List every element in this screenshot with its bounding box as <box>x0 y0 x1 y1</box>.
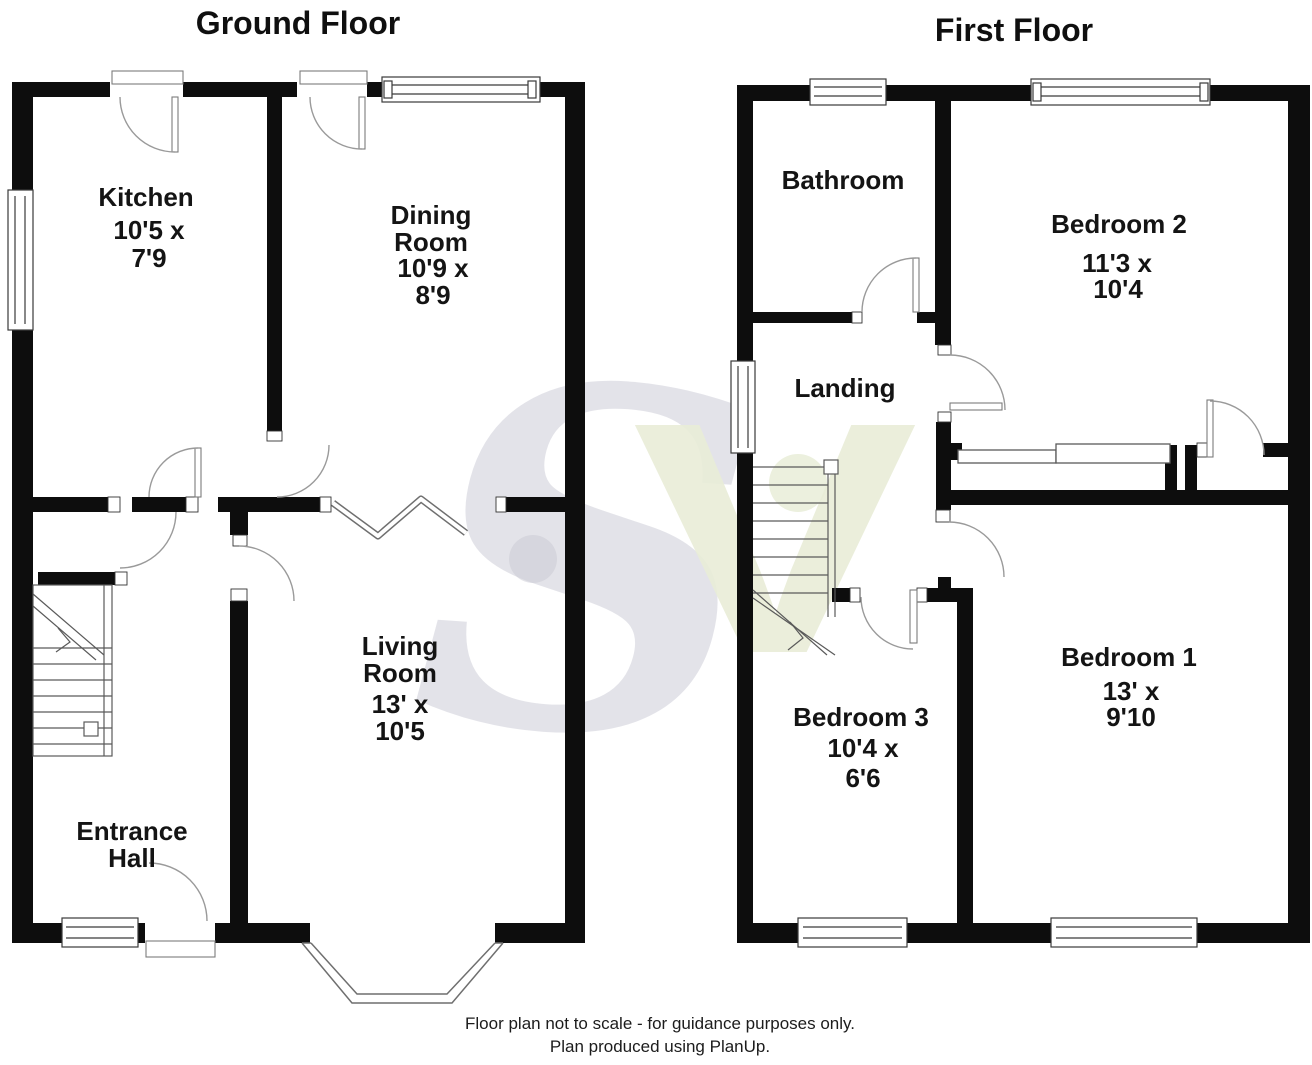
window-bedroom3-bottom <box>798 918 907 947</box>
footer-credit: Plan produced using PlanUp. <box>550 1037 770 1056</box>
cupboard-door-leaf <box>1207 400 1213 457</box>
footer-disclaimer: Floor plan not to scale - for guidance p… <box>465 1014 855 1033</box>
room-dim-living-1: 13' x <box>372 689 429 719</box>
dining-exterior-door-frame <box>300 71 367 84</box>
room-dim-bedroom3-1: 10'4 x <box>827 733 899 763</box>
window-bedroom1-bottom <box>1051 918 1197 947</box>
front-door-arc <box>149 863 207 921</box>
cupboard-door-arc <box>1210 401 1264 455</box>
dining-exterior-door-arc <box>310 97 362 149</box>
bedroom1-wardrobes <box>958 444 1170 463</box>
ground-floor-title: Ground Floor <box>196 5 400 41</box>
bedroom2-door-arc <box>950 355 1005 410</box>
room-dim-kitchen-2: 7'9 <box>131 243 166 273</box>
dining-exterior-door-leaf <box>359 97 365 149</box>
kitchen-exterior-door-arc <box>120 97 175 152</box>
hall-door-arc <box>120 512 176 568</box>
room-label-landing: Landing <box>794 373 895 403</box>
room-label-bathroom: Bathroom <box>782 165 905 195</box>
room-dim-bedroom1-2: 9'10 <box>1106 702 1156 732</box>
bathroom-door-arc <box>862 258 916 312</box>
room-dim-kitchen-1: 10'5 x <box>113 215 185 245</box>
front-door-frame <box>146 941 215 957</box>
room-label-hall-2: Hall <box>108 843 156 873</box>
room-dim-dining-1: 10'9 x <box>397 253 469 283</box>
window-landing-left <box>731 361 755 453</box>
first-floor-title: First Floor <box>935 12 1093 48</box>
kitchen-exterior-door-leaf <box>172 97 178 152</box>
floor-plan-page: S V <box>0 0 1312 1065</box>
window-hall-bottom <box>62 918 138 947</box>
room-label-kitchen: Kitchen <box>98 182 193 212</box>
room-label-hall-1: Entrance <box>76 816 187 846</box>
kitchen-exterior-door-frame <box>112 71 183 84</box>
dining-door-arc <box>277 445 329 497</box>
kitchen-hall-door-arc <box>149 448 198 497</box>
window-ground-top <box>382 77 540 102</box>
bedroom3-door-leaf <box>910 590 917 643</box>
room-dim-dining-2: 8'9 <box>415 280 450 310</box>
room-label-bedroom2: Bedroom 2 <box>1051 209 1187 239</box>
room-dim-bedroom2-2: 10'4 <box>1093 274 1143 304</box>
bathroom-door-leaf <box>913 258 919 312</box>
room-label-bedroom1: Bedroom 1 <box>1061 642 1197 672</box>
kitchen-hall-door-leaf <box>195 448 201 497</box>
bay-window <box>302 943 503 1003</box>
window-bedroom2-top <box>1031 79 1210 105</box>
ground-floor-plan: Ground Floor Kitchen 10'5 x 7'9 Dining R… <box>8 5 585 1003</box>
window-bathroom-top <box>810 79 886 105</box>
room-label-living-1: Living <box>362 631 439 661</box>
watermark: S V <box>401 276 920 850</box>
room-dim-bedroom3-2: 6'6 <box>845 763 880 793</box>
bedroom2-door-leaf <box>950 403 1002 410</box>
room-label-bedroom3: Bedroom 3 <box>793 702 929 732</box>
room-label-living-2: Room <box>363 658 437 688</box>
window-kitchen-left <box>8 190 33 330</box>
room-dim-living-2: 10'5 <box>375 716 425 746</box>
ground-staircase <box>33 585 112 756</box>
floor-plan-canvas: S V <box>0 0 1312 1065</box>
footer: Floor plan not to scale - for guidance p… <box>465 1014 855 1056</box>
room-label-dining-1: Dining <box>391 200 472 230</box>
bedroom1-door-arc <box>949 522 1004 577</box>
